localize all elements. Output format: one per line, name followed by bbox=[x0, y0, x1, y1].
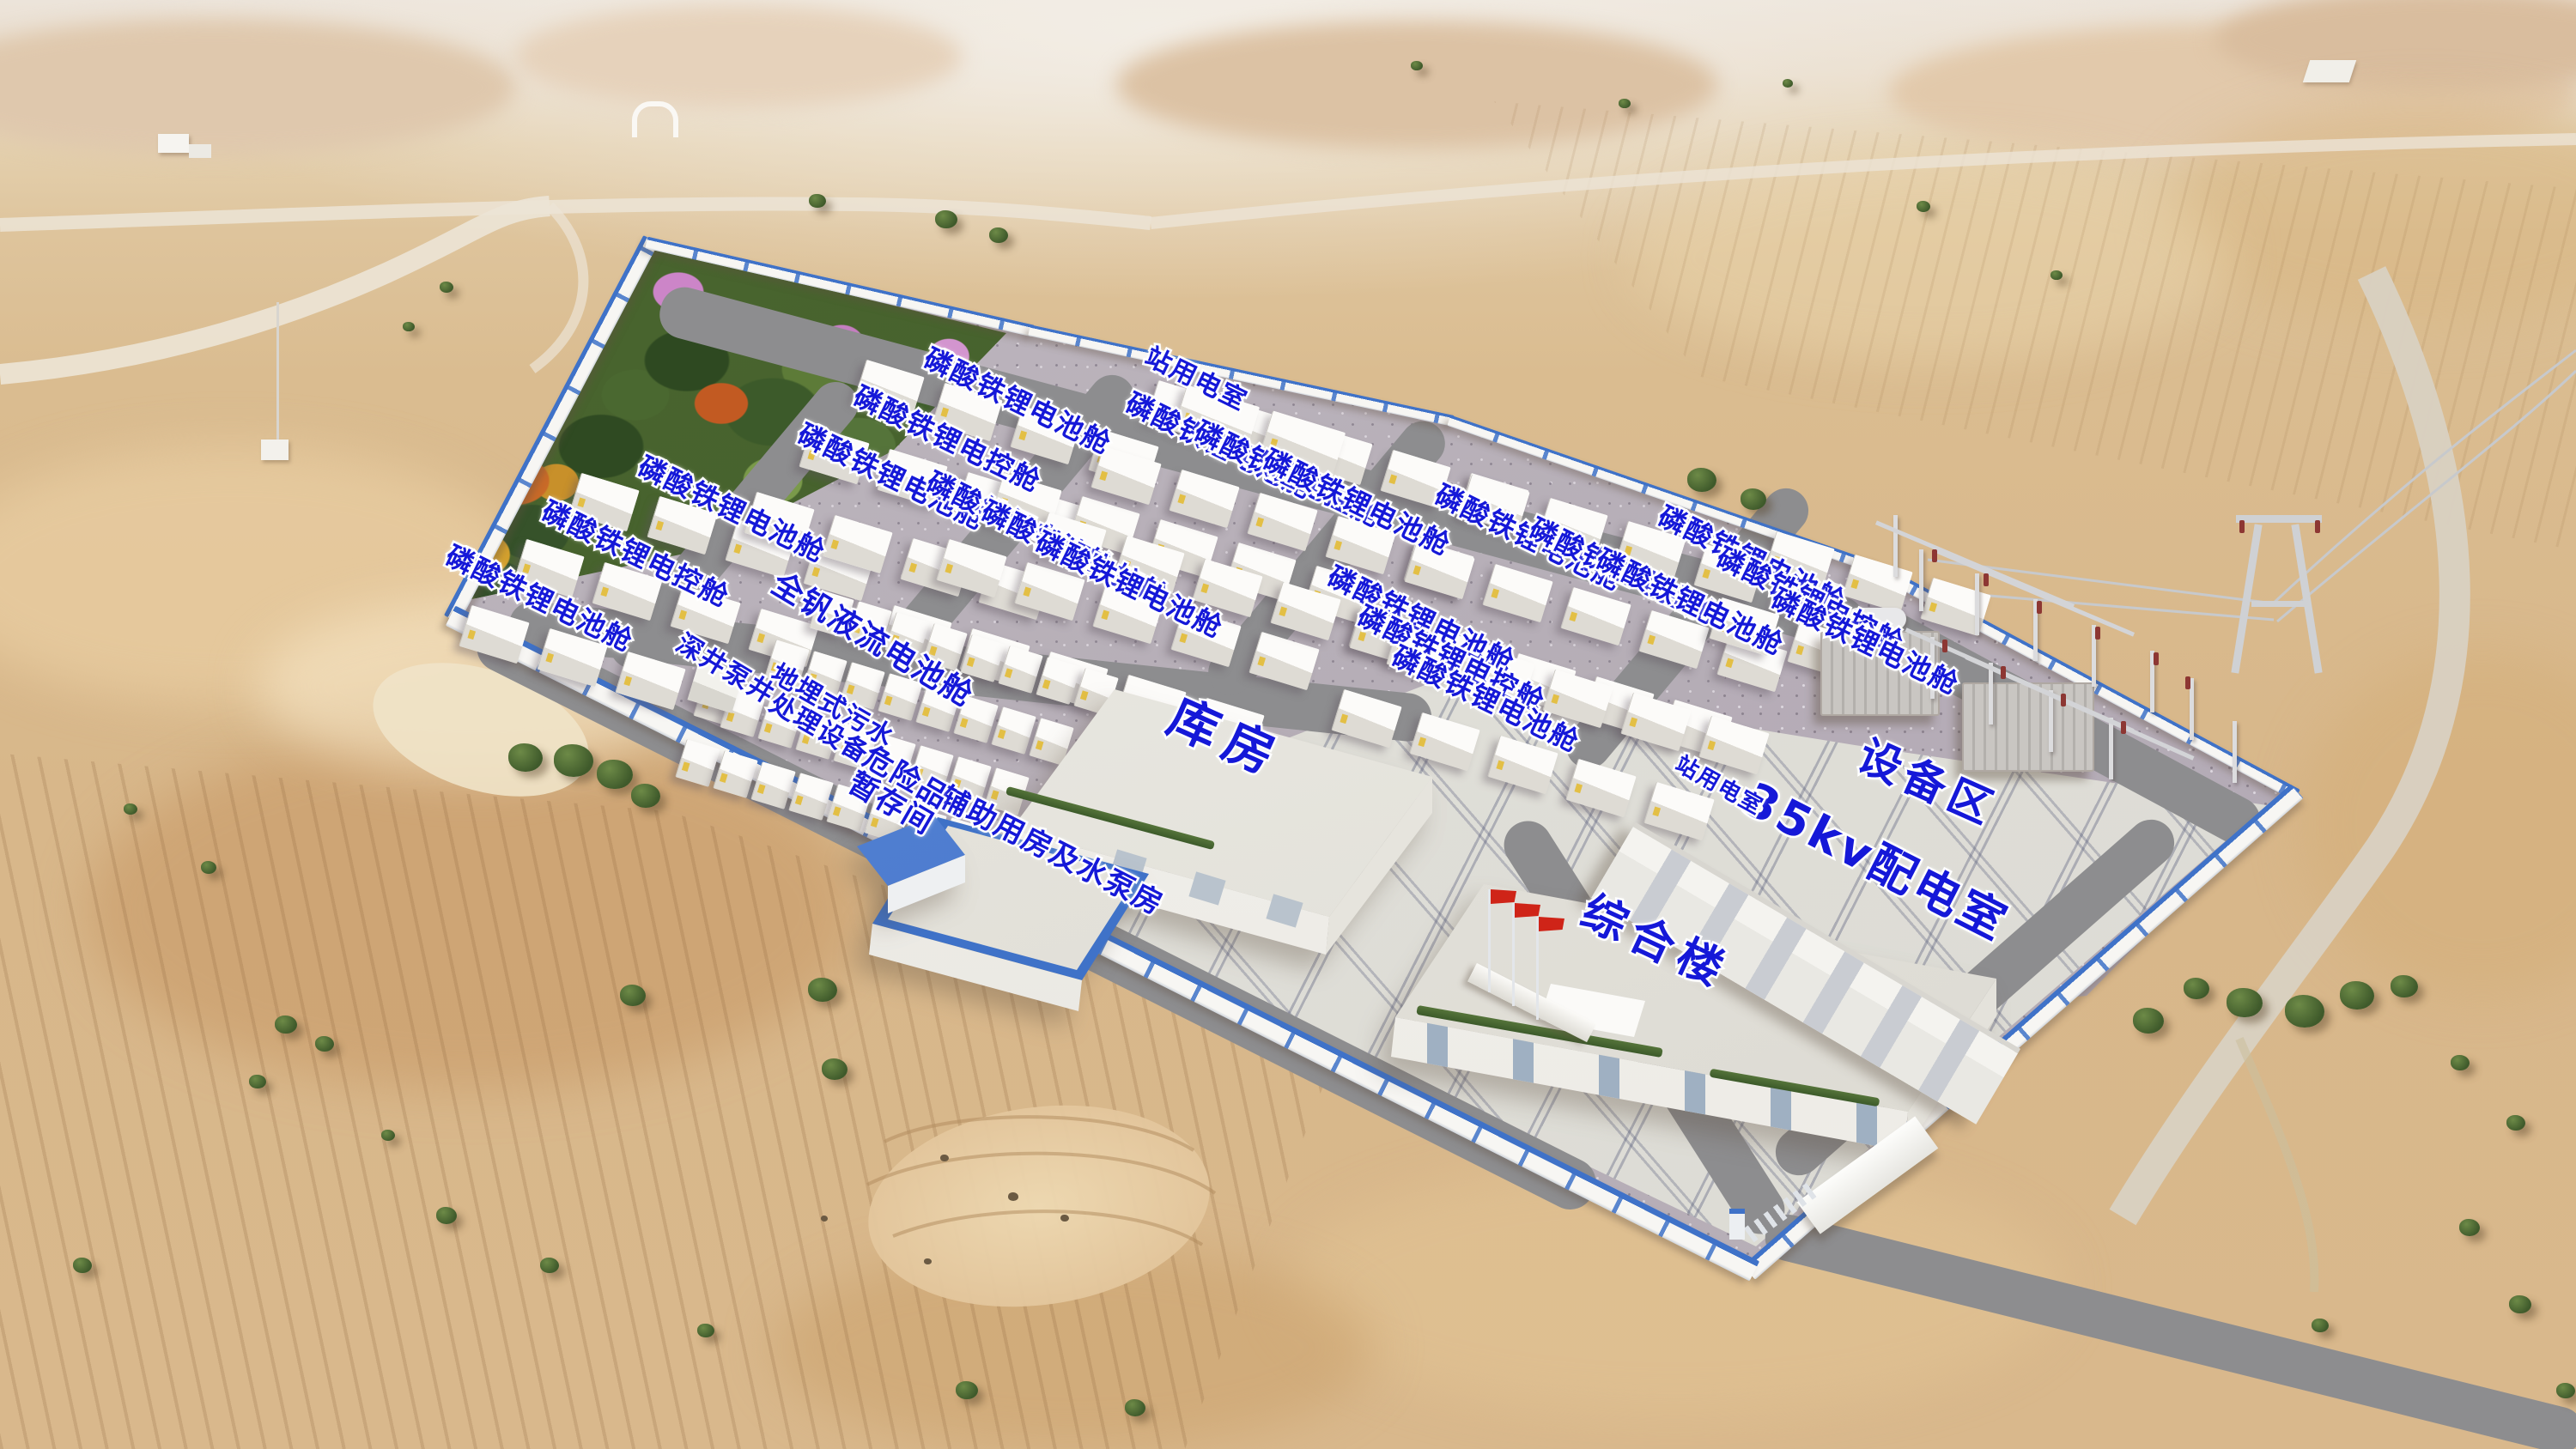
label-aux-pump-house: 辅助用房及水泵房 bbox=[934, 782, 1169, 921]
label-sewage-treatment: 地埋式污水 处理设备 bbox=[753, 660, 899, 775]
label-warehouse: 库房 bbox=[1161, 690, 1291, 786]
label-equipment-area: 设备区 bbox=[1851, 732, 2003, 833]
facility-labels: 站用电室 库房 综合楼 设备区 35kv配电室 站用电室 全钒液流电池舱 辅助用… bbox=[0, 0, 2576, 1449]
label-battery-cabin: 磷酸铁锂电池舱 bbox=[1767, 585, 1964, 700]
label-office-building: 综合楼 bbox=[1575, 888, 1737, 997]
label-battery-cabin: 磷酸铁锂电池舱 bbox=[1259, 446, 1455, 561]
aerial-facility-render: 站用电室 库房 综合楼 设备区 35kv配电室 站用电室 全钒液流电池舱 辅助用… bbox=[0, 0, 2576, 1449]
label-battery-cabin: 磷酸铁锂电池舱 bbox=[1031, 528, 1228, 643]
